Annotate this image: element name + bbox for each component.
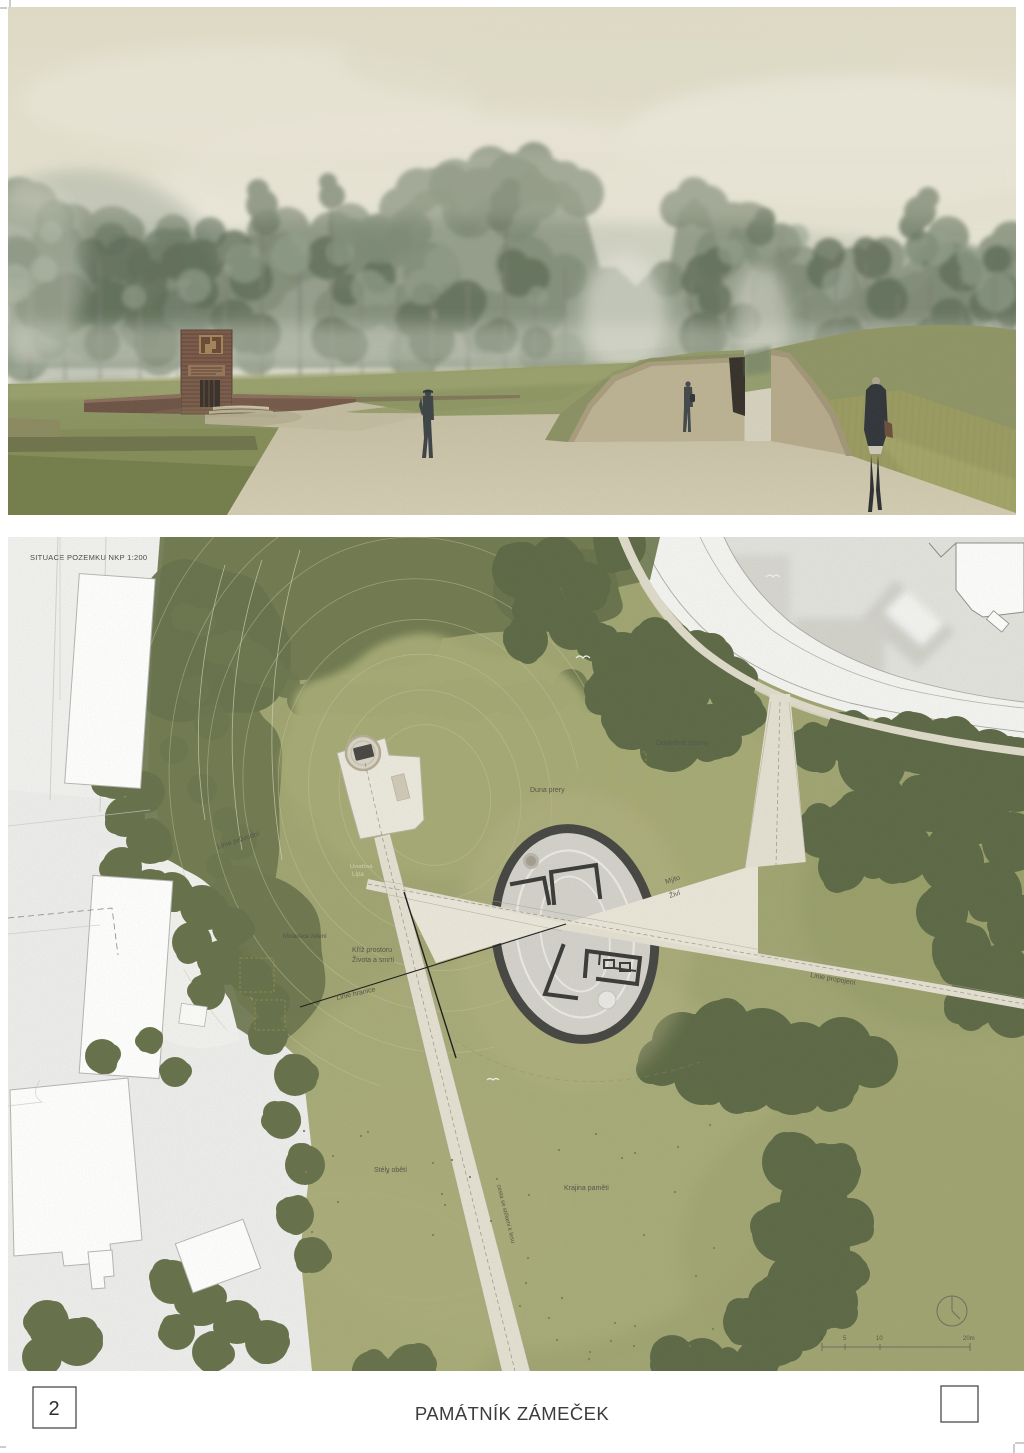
svg-text:PAMÁTNÍK ZÁMEČEK: PAMÁTNÍK ZÁMEČEK <box>415 1403 609 1424</box>
svg-text:2: 2 <box>48 1398 59 1420</box>
